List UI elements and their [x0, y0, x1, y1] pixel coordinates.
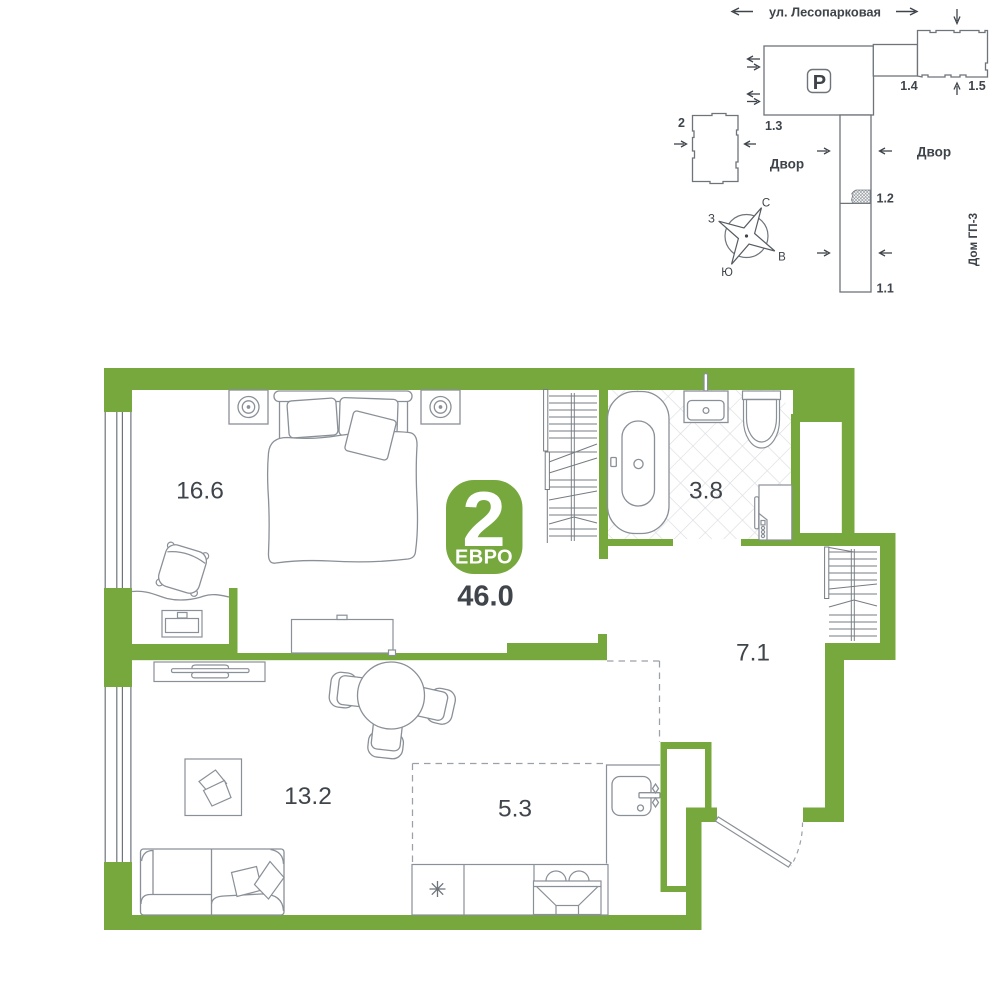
svg-text:Р: Р [813, 72, 826, 94]
svg-text:16.6: 16.6 [176, 478, 224, 505]
svg-text:1.4: 1.4 [900, 79, 917, 93]
svg-text:ул. Лесопарковая: ул. Лесопарковая [769, 5, 881, 20]
svg-text:13.2: 13.2 [284, 783, 332, 810]
svg-text:Двор: Двор [770, 157, 804, 172]
svg-text:7.1: 7.1 [736, 640, 770, 667]
svg-text:В: В [778, 252, 786, 264]
svg-text:З: З [708, 214, 715, 226]
svg-text:1.1: 1.1 [877, 282, 894, 296]
svg-text:Дом ГП-3: Дом ГП-3 [966, 212, 980, 266]
svg-text:1.2: 1.2 [877, 192, 894, 206]
svg-text:С: С [762, 198, 770, 210]
svg-text:Двор: Двор [917, 145, 951, 160]
svg-text:3.8: 3.8 [689, 478, 723, 505]
svg-text:2: 2 [678, 116, 685, 130]
svg-text:5.3: 5.3 [498, 796, 532, 823]
svg-text:1.5: 1.5 [968, 79, 985, 93]
svg-text:ЕВРО: ЕВРО [455, 547, 513, 569]
svg-text:46.0: 46.0 [457, 581, 513, 613]
svg-text:1.3: 1.3 [765, 119, 782, 133]
svg-text:Ю: Ю [721, 267, 733, 279]
